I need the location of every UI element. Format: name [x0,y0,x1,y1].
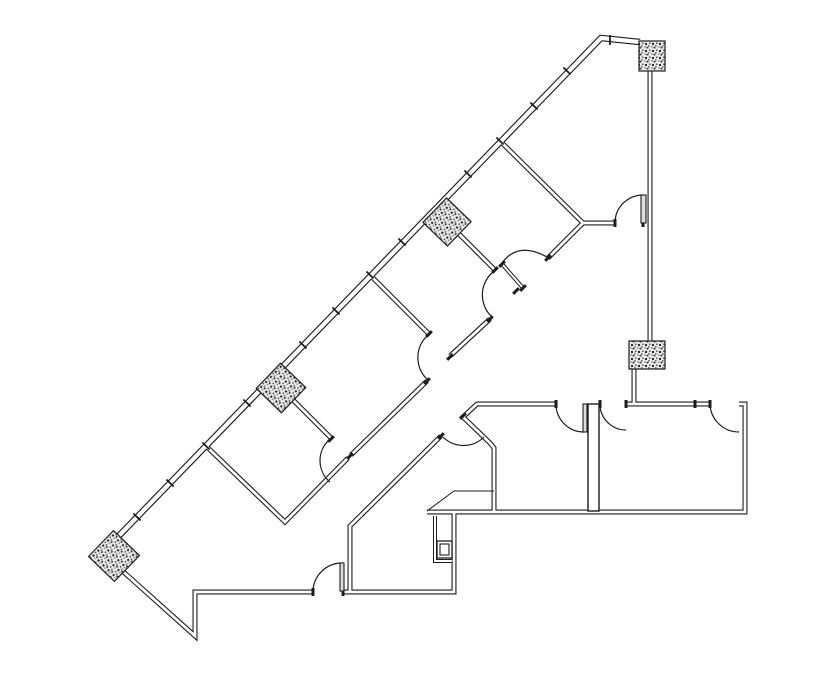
door-leaf-top-right-room [641,195,646,223]
floor-plan-drawing [0,0,835,678]
column-mid-right [629,341,665,369]
door-leaf-wing-room1 [583,404,587,432]
door-leaf-office5 [340,563,344,591]
column-top-right [639,41,665,71]
shaft-wall [588,404,599,511]
floor-plan-page [0,0,835,678]
